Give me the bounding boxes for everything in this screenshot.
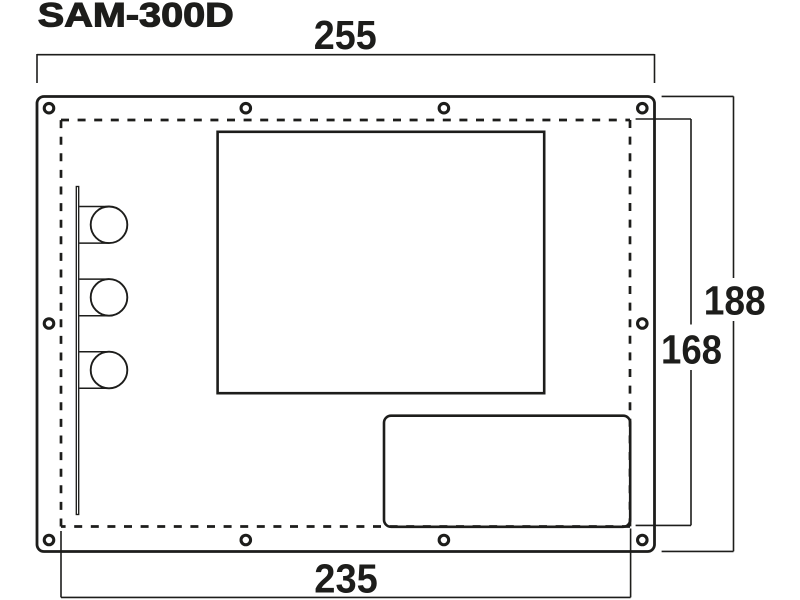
svg-text:188: 188 — [704, 277, 766, 323]
svg-text:SAM-300D: SAM-300D — [38, 0, 234, 35]
svg-text:168: 168 — [661, 327, 722, 373]
svg-text:235: 235 — [314, 556, 378, 600]
svg-text:255: 255 — [314, 12, 377, 58]
